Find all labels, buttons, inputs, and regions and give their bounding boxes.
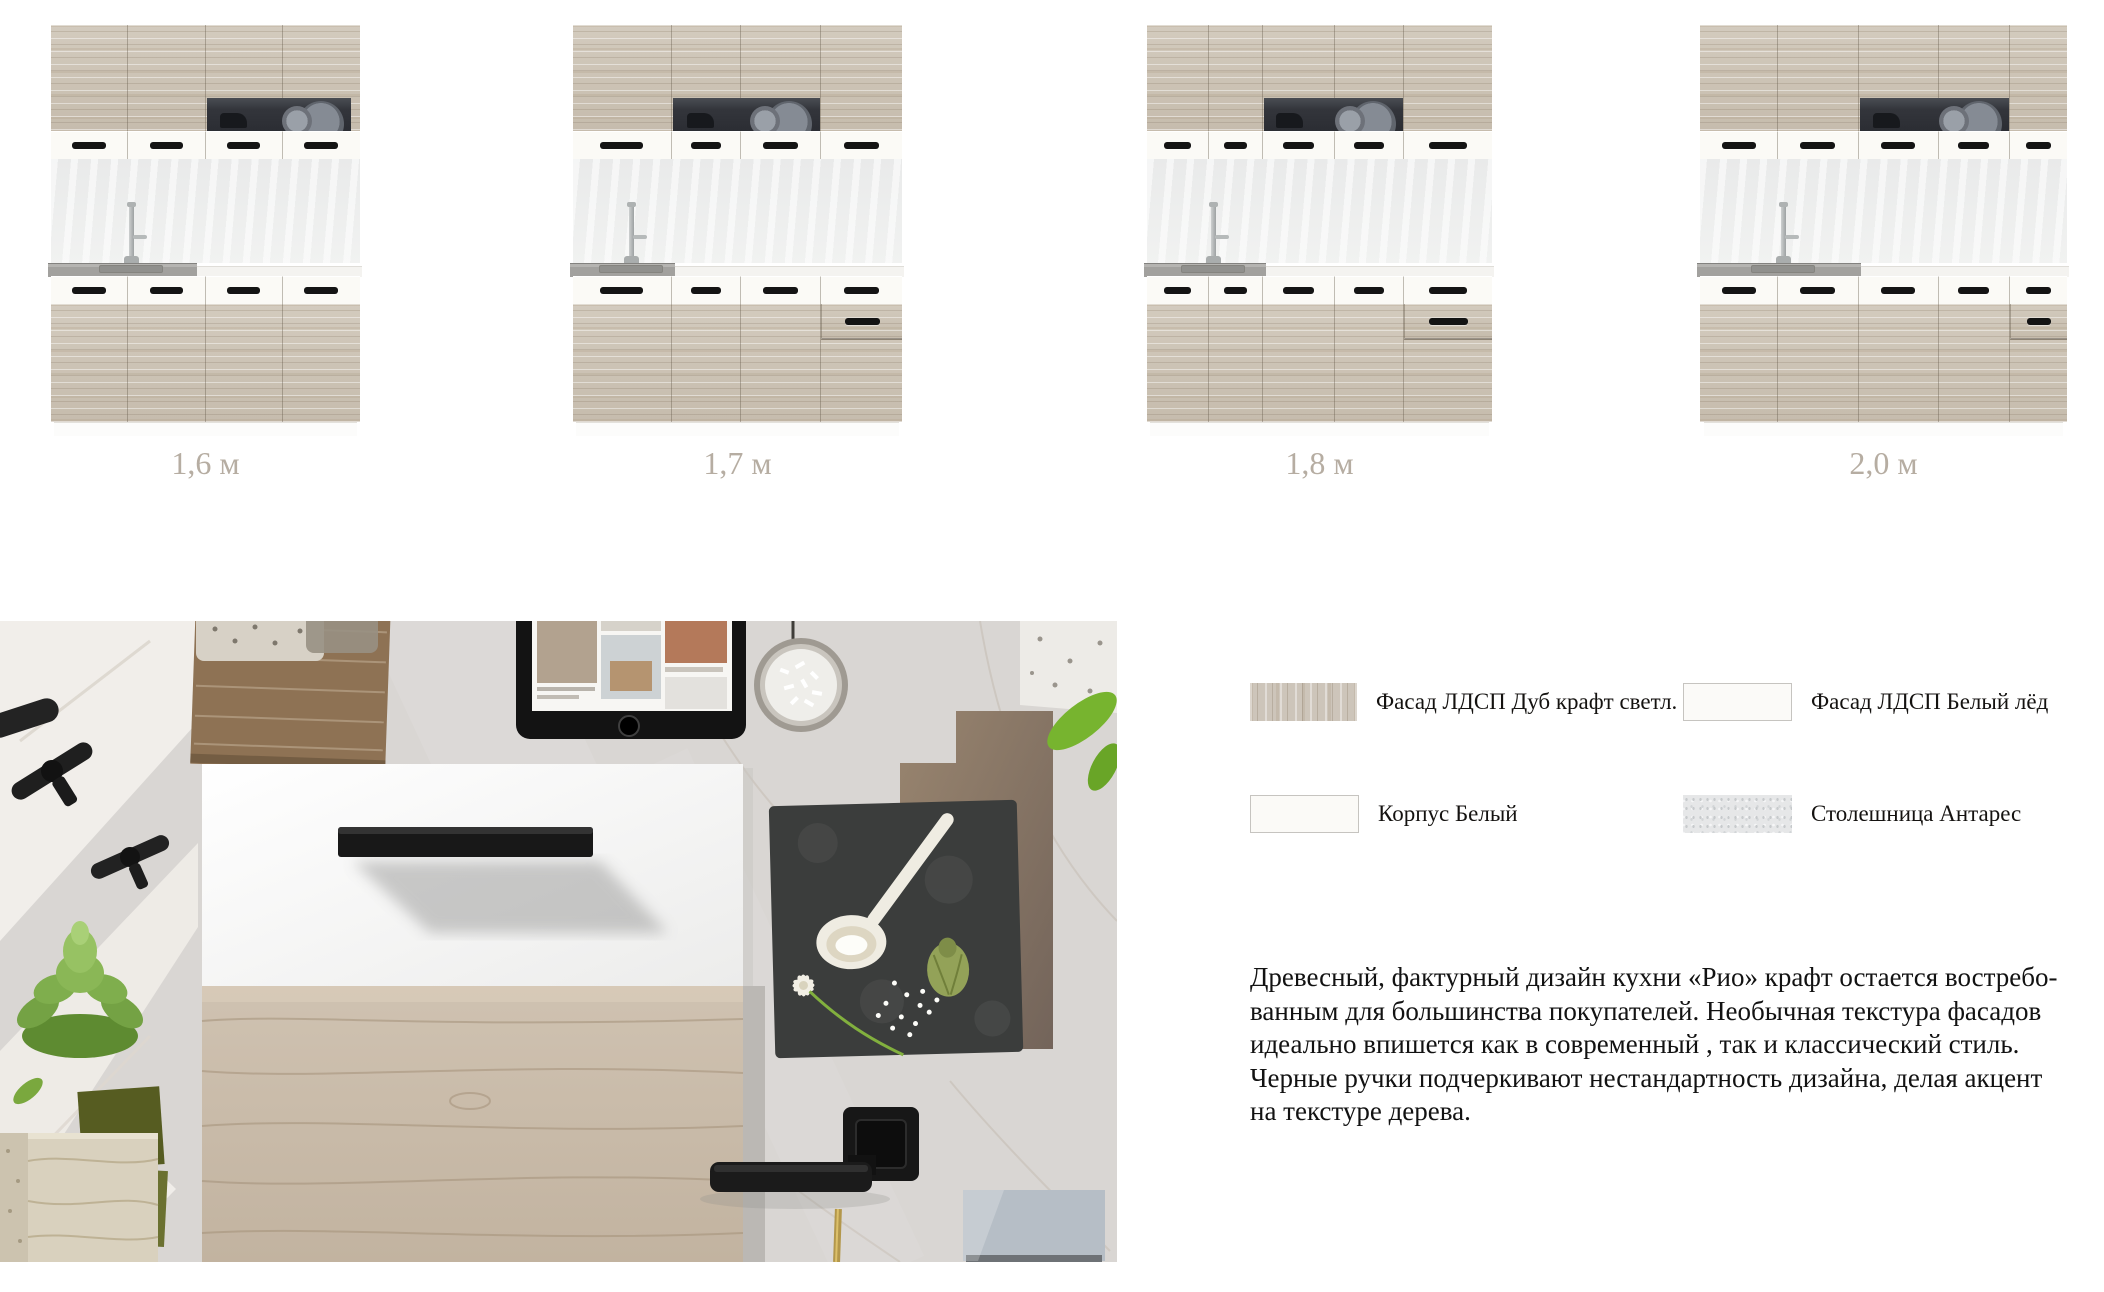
tablet-home-button xyxy=(619,716,639,736)
upper-handle-door xyxy=(1939,131,2011,159)
backsplash xyxy=(1147,159,1492,263)
faucet xyxy=(1781,201,1787,263)
door-handle xyxy=(1881,142,1916,149)
sink xyxy=(1181,265,1245,273)
door-handle xyxy=(1881,287,1916,294)
material-item: Фасад ЛДСП Белый лёд xyxy=(1683,683,2048,721)
drawer-front xyxy=(741,276,822,304)
drawer-fronts xyxy=(51,276,360,305)
kettle-silhouette xyxy=(220,113,247,128)
plate-small xyxy=(1335,106,1365,131)
door-handle xyxy=(227,142,261,149)
drawer-front xyxy=(128,276,205,304)
upper-handle-door xyxy=(128,131,205,159)
material-label: Фасад ЛДСП Белый лёд xyxy=(1811,689,2048,715)
base-cabinet-door xyxy=(1859,304,1939,422)
plinth xyxy=(54,422,357,436)
door-handle xyxy=(1429,142,1468,149)
faucet xyxy=(1211,201,1217,263)
base-cabinet-door xyxy=(573,304,672,422)
plinth xyxy=(576,422,898,436)
door-handle xyxy=(304,287,338,294)
swatch-facade-white-ice xyxy=(1683,683,1792,721)
upper-handle-door xyxy=(1778,131,1858,159)
door-handle xyxy=(844,142,879,149)
dish-niche xyxy=(207,98,351,131)
plate-small xyxy=(1939,106,1969,131)
door-handle xyxy=(1722,287,1756,294)
kitchen-image xyxy=(573,25,902,435)
upper-handle-doors xyxy=(51,131,360,160)
base-cabinet-door xyxy=(283,304,360,422)
drawer-front xyxy=(1147,276,1209,304)
base-cabinets xyxy=(51,304,360,422)
faucet-lever xyxy=(1215,235,1229,239)
base-cabinet-door xyxy=(1335,304,1404,422)
white-cabinet-panel xyxy=(202,764,753,986)
base-cabinet-door xyxy=(1778,304,1858,422)
door-handle xyxy=(150,142,184,149)
door-handle xyxy=(72,142,106,149)
upper-handle-door xyxy=(283,131,360,159)
upper-handle-door xyxy=(573,131,672,159)
drawer-front xyxy=(283,276,360,304)
door-handle xyxy=(1283,287,1314,294)
faucet-pole xyxy=(129,205,134,257)
slate-board xyxy=(769,800,1024,1058)
upper-cabinet-door xyxy=(1778,25,1858,131)
faucet-pole xyxy=(1211,205,1216,257)
kitchen-image xyxy=(1147,25,1492,435)
upper-handle-doors xyxy=(1700,131,2067,160)
base-cabinet-door xyxy=(1939,304,2011,422)
upper-handle-door xyxy=(1335,131,1404,159)
upper-handle-door xyxy=(1700,131,1778,159)
door-handle xyxy=(1722,142,1756,149)
drawer-front xyxy=(51,276,128,304)
upper-handle-door xyxy=(1404,131,1492,159)
base-cabinet-door xyxy=(128,304,205,422)
door-handle xyxy=(227,287,261,294)
faucet-tip xyxy=(127,202,136,207)
drawer-front xyxy=(1700,276,1778,304)
door-handle xyxy=(763,142,798,149)
drawer-front xyxy=(1209,276,1262,304)
glass-sample xyxy=(963,1190,1105,1262)
upper-cabinet-door xyxy=(821,25,902,131)
upper-cabinet-door xyxy=(1209,25,1262,131)
kettle-silhouette xyxy=(687,113,714,128)
material-item: Корпус Белый xyxy=(1250,795,1518,833)
base-cabinet-door xyxy=(741,304,822,422)
drawer-fronts xyxy=(573,276,902,305)
door-handle xyxy=(1283,142,1314,149)
faucet-tip xyxy=(1209,202,1218,207)
base-cabinet-door xyxy=(1263,304,1335,422)
kitchen-size-label: 1,6 м xyxy=(51,445,360,485)
plinth xyxy=(1150,422,1488,436)
tall-unit-drawer xyxy=(821,304,902,340)
upper-cabinet-door xyxy=(1147,25,1209,131)
door-handle xyxy=(2026,287,2051,294)
upper-handle-doors xyxy=(1147,131,1492,160)
moodboard-photo xyxy=(0,621,1117,1262)
swatch-facade-oak xyxy=(1250,683,1357,721)
faucet xyxy=(629,201,635,263)
material-label: Корпус Белый xyxy=(1378,801,1518,827)
plinth xyxy=(1704,422,2064,436)
dish-niche xyxy=(673,98,819,131)
door-handle xyxy=(2027,318,2052,325)
backsplash xyxy=(1700,159,2067,263)
base-cabinet-door xyxy=(1147,304,1209,422)
drawer-front xyxy=(1404,276,1492,304)
base-cabinet-door xyxy=(206,304,283,422)
upper-handle-door xyxy=(1859,131,1939,159)
upper-cabinet-door xyxy=(2010,25,2067,131)
drawer-front xyxy=(1263,276,1335,304)
door-handle xyxy=(1164,142,1191,149)
upper-cabinet-door xyxy=(1700,25,1778,131)
door-handle xyxy=(1800,287,1835,294)
backsplash xyxy=(51,159,360,263)
drawer-front xyxy=(2010,276,2067,304)
door-handle xyxy=(1224,142,1247,149)
door-handle xyxy=(1958,287,1989,294)
dish-niche xyxy=(1264,98,1403,131)
sink xyxy=(599,265,663,273)
drawer-front xyxy=(1859,276,1939,304)
door-handle xyxy=(600,287,643,294)
swatch-corpus-white xyxy=(1250,795,1359,833)
door-handle xyxy=(1354,142,1384,149)
wood-grain-panel xyxy=(202,986,765,1262)
drawer-front xyxy=(1335,276,1404,304)
plate-small xyxy=(282,106,312,131)
door-handle xyxy=(1958,142,1989,149)
faucet-lever xyxy=(133,235,147,239)
dish-niche xyxy=(1860,98,2009,131)
faucet-lever xyxy=(633,235,647,239)
faucet-pole xyxy=(1781,205,1786,257)
door-handle xyxy=(72,287,106,294)
upper-handle-door xyxy=(672,131,741,159)
upper-handle-door xyxy=(206,131,283,159)
upper-handle-door xyxy=(1209,131,1262,159)
base-cabinet-door xyxy=(1700,304,1778,422)
door-handle xyxy=(150,287,184,294)
faucet xyxy=(129,201,135,263)
base-cabinet-door xyxy=(1209,304,1262,422)
tall-unit-drawer xyxy=(2010,304,2067,340)
upper-handle-door xyxy=(821,131,902,159)
salt-bowl xyxy=(754,638,848,732)
door-handle xyxy=(304,142,338,149)
faucet-base xyxy=(124,256,139,263)
drawer-front xyxy=(206,276,283,304)
kitchen-image xyxy=(1700,25,2067,435)
upper-handle-door xyxy=(1263,131,1335,159)
drawer-front xyxy=(1939,276,2011,304)
sink xyxy=(1751,265,1815,273)
faucet-pole xyxy=(629,205,634,257)
faucet-base xyxy=(1776,256,1791,263)
onyx-stone-block xyxy=(0,1133,158,1262)
faucet-base xyxy=(1206,256,1221,263)
description-text: Древесный, фактурный дизайн кухни «Рио» … xyxy=(1250,961,2090,1129)
base-cabinet-door xyxy=(672,304,741,422)
drawer-front xyxy=(1778,276,1858,304)
upper-cabinet-door xyxy=(128,25,205,131)
kettle-silhouette xyxy=(1873,113,1900,128)
upper-handle-door xyxy=(1147,131,1209,159)
upper-cabinet-door xyxy=(573,25,672,131)
door-handle xyxy=(845,318,880,325)
drawer-front xyxy=(821,276,902,304)
upper-handle-doors xyxy=(573,131,902,160)
door-handle xyxy=(844,287,879,294)
drawer-fronts xyxy=(1147,276,1492,305)
door-handle xyxy=(1800,142,1835,149)
product-page: 1,6 м1,7 м1,8 м2,0 м xyxy=(0,0,2104,1292)
tall-unit-drawer xyxy=(1404,304,1492,340)
upper-cabinet-door xyxy=(51,25,128,131)
material-label: Фасад ЛДСП Дуб крафт светл. xyxy=(1376,689,1677,715)
faucet-tip xyxy=(627,202,636,207)
door-handle xyxy=(2026,142,2051,149)
base-cabinet-door xyxy=(51,304,128,422)
upper-handle-door xyxy=(51,131,128,159)
drawer-front xyxy=(672,276,741,304)
material-item: Фасад ЛДСП Дуб крафт светл. xyxy=(1250,683,1677,721)
upper-handle-door xyxy=(741,131,822,159)
upper-cabinet-door xyxy=(1404,25,1492,131)
door-handle xyxy=(1354,287,1384,294)
kettle-silhouette xyxy=(1276,113,1303,128)
door-handle xyxy=(691,142,721,149)
faucet-tip xyxy=(1779,202,1788,207)
door-handle xyxy=(1224,287,1247,294)
plate-small xyxy=(750,106,780,131)
kitchen-image xyxy=(51,25,360,435)
kitchen-size-label: 1,8 м xyxy=(1147,445,1492,485)
tablet xyxy=(516,621,746,739)
drawer-fronts xyxy=(1700,276,2067,305)
door-handle xyxy=(1429,318,1467,325)
door-handle xyxy=(691,287,721,294)
door-handle xyxy=(763,287,798,294)
kitchen-size-label: 2,0 м xyxy=(1700,445,2067,485)
material-item: Столешница Антарес xyxy=(1683,795,2021,833)
material-label: Столешница Антарес xyxy=(1811,801,2021,827)
drawer-front xyxy=(573,276,672,304)
upper-handle-door xyxy=(2010,131,2067,159)
kitchen-size-label: 1,7 м xyxy=(573,445,902,485)
door-handle xyxy=(1429,287,1468,294)
door-handle xyxy=(600,142,643,149)
backsplash xyxy=(573,159,902,263)
faucet-lever xyxy=(1785,235,1799,239)
kitchen-sizes-row: 1,6 м1,7 м1,8 м2,0 м xyxy=(0,0,2104,500)
swatch-countertop-antares xyxy=(1683,795,1792,833)
door-handle xyxy=(1164,287,1191,294)
faucet-base xyxy=(624,256,639,263)
sink xyxy=(99,265,163,273)
